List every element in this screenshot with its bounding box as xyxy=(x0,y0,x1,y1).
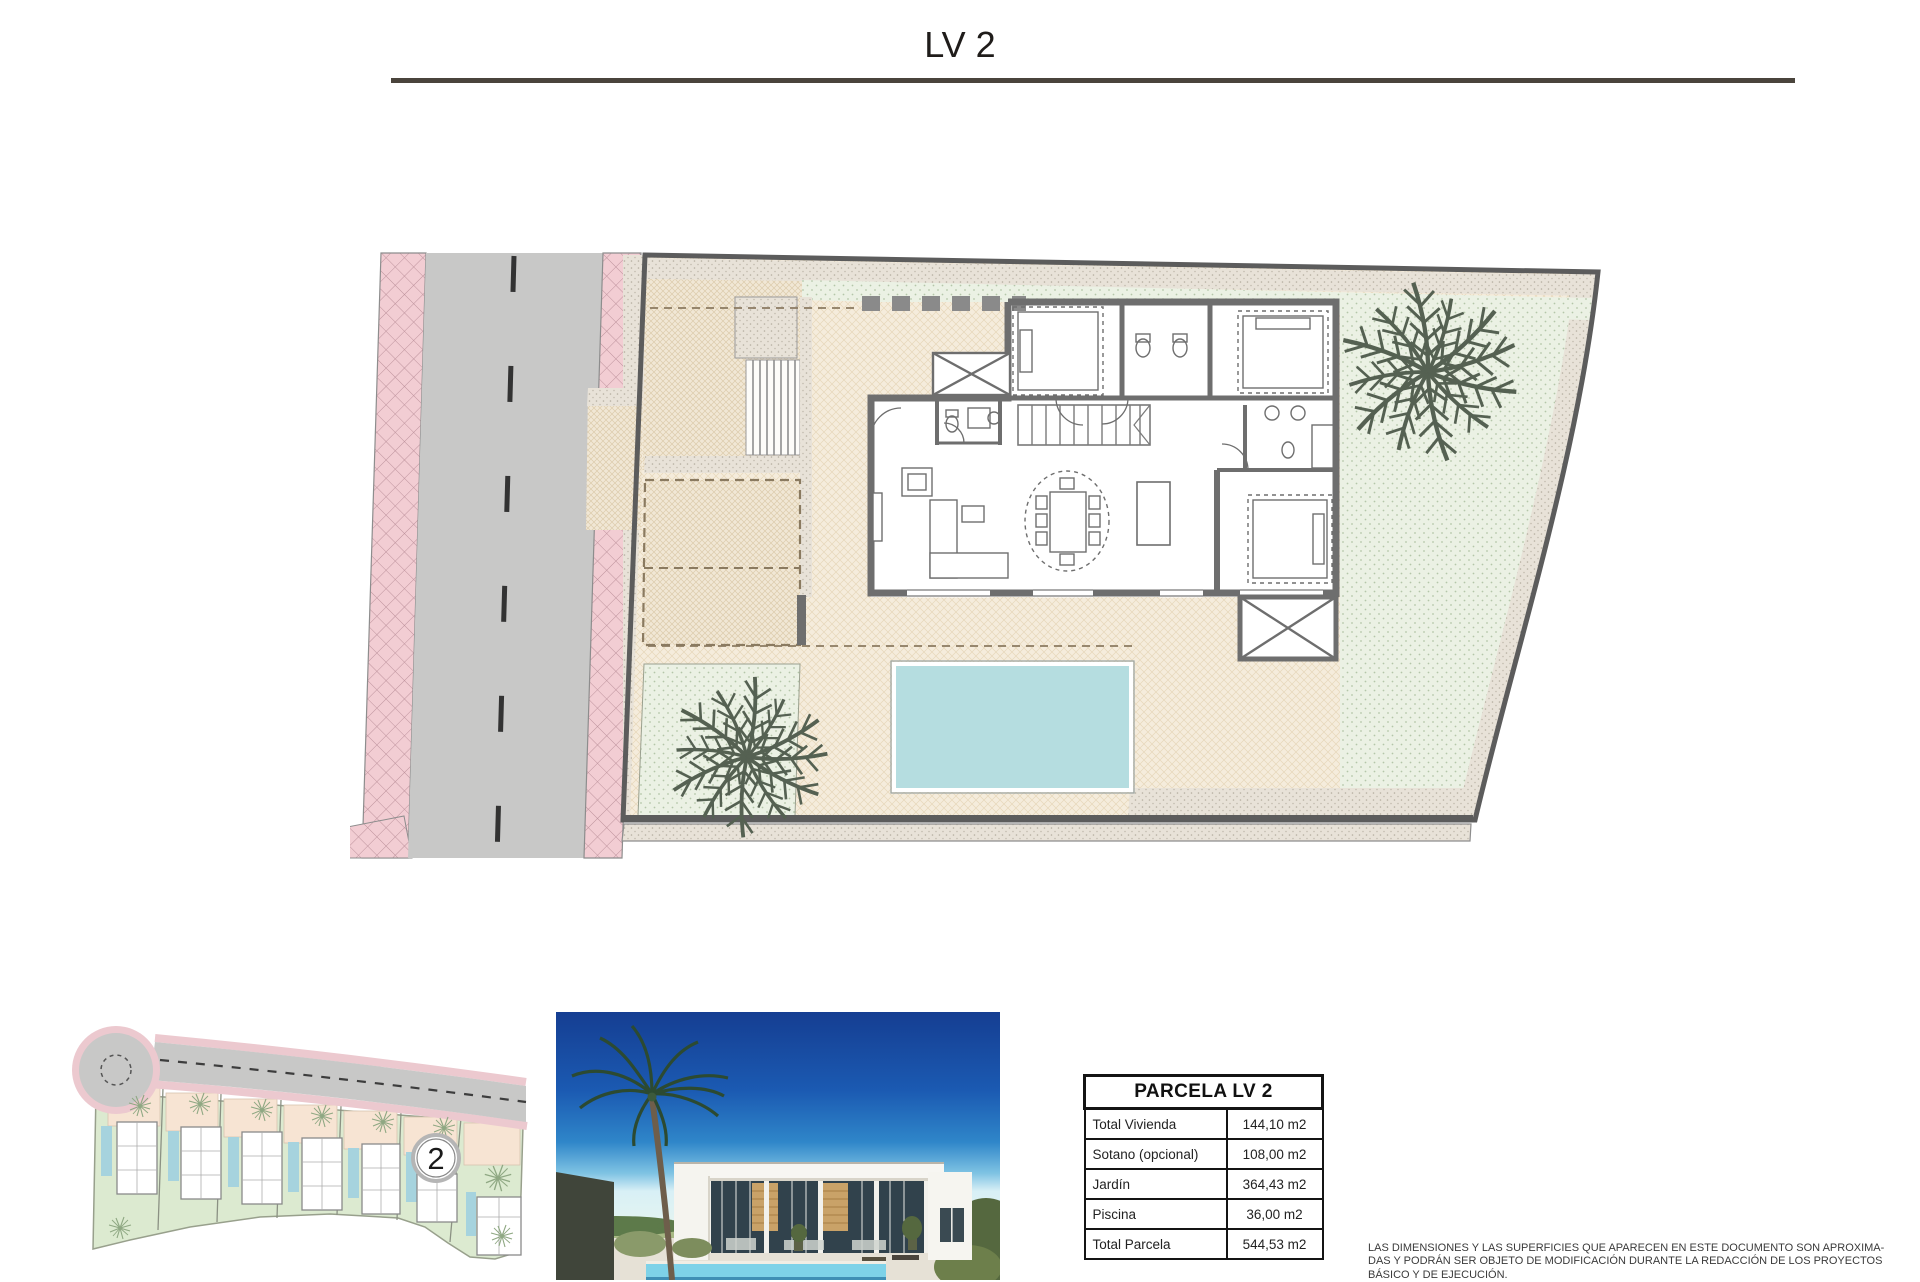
disclaimer-line: DAS Y PODRÁN SER OBJETO DE MODIFICACIÓN … xyxy=(1368,1255,1888,1268)
pool xyxy=(891,661,1134,793)
disclaimer: LAS DIMENSIONES Y LAS SUPERFICIES QUE AP… xyxy=(1368,1242,1888,1282)
road-asphalt xyxy=(408,253,603,858)
skylight-box xyxy=(933,353,1010,395)
bed xyxy=(1013,307,1103,395)
overview-map: 2 xyxy=(60,1020,530,1280)
table-row: Piscina 36,00 m2 xyxy=(1085,1199,1323,1229)
table-row: Sotano (opcional) 108,00 m2 xyxy=(1085,1139,1323,1169)
bed xyxy=(1238,311,1328,393)
title-rule xyxy=(391,78,1795,83)
parcel-table: PARCELA LV 2 Total Vivienda 144,10 m2 So… xyxy=(1083,1074,1324,1260)
disclaimer-line: LAS DIMENSIONES Y LAS SUPERFICIES QUE AP… xyxy=(1368,1242,1888,1255)
table-row: Total Vivienda 144,10 m2 xyxy=(1085,1109,1323,1140)
table-row: Total Parcela 544,53 m2 xyxy=(1085,1229,1323,1259)
page-title: LV 2 xyxy=(0,24,1920,66)
disclaimer-line: BÁSICO Y DE EJECUCIÓN. xyxy=(1368,1269,1888,1282)
parking-area xyxy=(643,480,800,645)
table-row: Jardín 364,43 m2 xyxy=(1085,1169,1323,1199)
plan-sheet: LV 2 xyxy=(0,0,1920,1280)
boundary-wall xyxy=(556,1172,614,1280)
bed xyxy=(1248,495,1332,583)
plot-badge: 2 xyxy=(413,1135,459,1181)
kitchen-island xyxy=(1137,482,1170,545)
parcel-table-title: PARCELA LV 2 xyxy=(1085,1076,1323,1109)
pool-front xyxy=(646,1261,886,1280)
porch-box xyxy=(1240,597,1336,659)
road xyxy=(350,253,641,858)
site-plan xyxy=(350,240,1620,870)
svg-text:2: 2 xyxy=(427,1141,444,1176)
villa-photo xyxy=(556,1012,1000,1280)
